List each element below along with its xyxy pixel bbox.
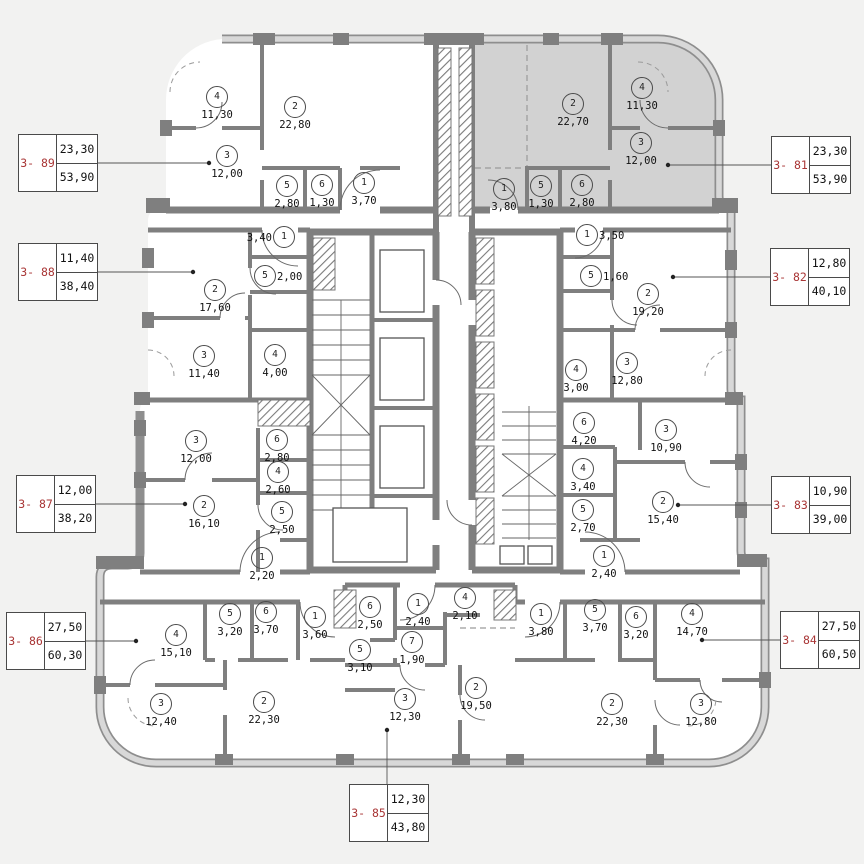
room-label: 52,00 (239, 265, 291, 287)
room-number: 1 (407, 593, 429, 615)
room-number: 1 (493, 178, 515, 200)
room-label: 312,00 (615, 132, 667, 167)
room-label: 219,20 (622, 283, 674, 318)
room-area: 15,10 (150, 648, 202, 659)
room-area: 2,00 (277, 272, 302, 283)
room-label: 62,80 (251, 429, 303, 464)
room-label: 44,00 (249, 344, 301, 379)
room-number: 4 (264, 344, 286, 366)
room-area-value: 12,00 (55, 476, 95, 505)
room-area: 11,40 (178, 369, 230, 380)
room-label: 43,40 (557, 458, 609, 493)
room-area: 12,00 (170, 454, 222, 465)
room-area: 22,30 (586, 717, 638, 728)
total-area-value: 39,00 (810, 506, 850, 534)
room-label: 63,70 (240, 601, 292, 636)
apartment-id: 3- 81 (772, 137, 810, 193)
total-area-value: 38,20 (55, 505, 95, 533)
total-area-value: 60,30 (45, 642, 85, 670)
room-number: 3 (216, 145, 238, 167)
room-number: 1 (530, 603, 552, 625)
room-area: 15,40 (637, 515, 689, 526)
total-area-value: 53,90 (57, 164, 97, 192)
room-number: 6 (311, 174, 333, 196)
apartment-callout-3-88: 3- 8811,4038,40 (18, 243, 98, 301)
total-area-value: 53,90 (810, 166, 850, 194)
floor-plan-drawing (0, 0, 864, 864)
room-number: 1 (251, 547, 273, 569)
room-label: 312,40 (135, 693, 187, 728)
room-number: 3 (655, 419, 677, 441)
room-area: 10,90 (640, 443, 692, 454)
room-number: 5 (349, 639, 371, 661)
room-area: 12,30 (379, 712, 431, 723)
room-number: 4 (681, 603, 703, 625)
room-label: 222,80 (269, 96, 321, 131)
room-number: 4 (565, 359, 587, 381)
room-number: 4 (454, 587, 476, 609)
room-label: 215,40 (637, 491, 689, 526)
room-area-value: 23,30 (57, 135, 97, 164)
room-number: 2 (652, 491, 674, 513)
apartment-callout-3-82: 3- 8212,8040,10 (770, 248, 850, 306)
room-number: 1 (576, 224, 598, 246)
room-area: 2,40 (578, 569, 630, 580)
room-label: 414,70 (666, 603, 718, 638)
room-number: 2 (253, 691, 275, 713)
room-label: 12,20 (236, 547, 288, 582)
room-number: 2 (284, 96, 306, 118)
room-label: 312,30 (379, 688, 431, 723)
apartment-callout-3-87: 3- 8712,0038,20 (16, 475, 96, 533)
room-label: 52,70 (557, 499, 609, 534)
apartment-id: 3- 88 (19, 244, 57, 300)
room-label: 42,10 (439, 587, 491, 622)
room-number: 4 (572, 458, 594, 480)
room-area: 17,60 (189, 303, 241, 314)
apartment-callout-3-86: 3- 8627,5060,30 (6, 612, 86, 670)
room-label: 311,40 (178, 345, 230, 380)
room-label: 312,00 (201, 145, 253, 180)
apartment-id: 3- 86 (7, 613, 45, 669)
room-number: 2 (204, 279, 226, 301)
room-number: 6 (625, 606, 647, 628)
room-number: 3 (185, 430, 207, 452)
floor-plan-page: 411,30 222,80 312,00 52,80 61,30 13,70 2… (0, 0, 864, 864)
room-area: 12,40 (135, 717, 187, 728)
room-area: 3,40 (247, 233, 272, 244)
room-number: 1 (273, 226, 295, 248)
room-number: 2 (193, 495, 215, 517)
room-number: 6 (255, 601, 277, 623)
room-area: 3,40 (557, 482, 609, 493)
total-area-value: 40,10 (809, 278, 849, 306)
apartment-callout-3-83: 3- 8310,9039,00 (771, 476, 851, 534)
room-area: 3,00 (550, 383, 602, 394)
room-area: 1,60 (603, 272, 628, 283)
room-label: 51,60 (565, 265, 617, 287)
room-number: 6 (573, 412, 595, 434)
room-area: 19,20 (622, 307, 674, 318)
room-area-value: 27,50 (45, 613, 85, 642)
room-label: 222,30 (238, 691, 290, 726)
room-area: 2,20 (236, 571, 288, 582)
room-area: 16,10 (178, 519, 230, 530)
apartment-id: 3- 89 (19, 135, 57, 191)
room-number: 2 (465, 677, 487, 699)
room-area: 19,50 (450, 701, 502, 712)
room-number: 5 (572, 499, 594, 521)
room-area-value: 12,80 (809, 249, 849, 278)
room-label: 216,10 (178, 495, 230, 530)
room-number: 3 (150, 693, 172, 715)
room-area: 22,80 (269, 120, 321, 131)
room-number: 3 (630, 132, 652, 154)
room-area: 3,20 (610, 630, 662, 641)
room-area: 22,70 (547, 117, 599, 128)
apartment-id: 3- 87 (17, 476, 55, 532)
room-label: 411,30 (616, 77, 668, 112)
room-area: 2,10 (439, 611, 491, 622)
room-number: 6 (266, 429, 288, 451)
room-number: 3 (193, 345, 215, 367)
room-area: 2,40 (392, 617, 444, 628)
room-number: 5 (219, 603, 241, 625)
room-area: 3,70 (240, 625, 292, 636)
room-number: 2 (562, 93, 584, 115)
room-label: 53,10 (334, 639, 386, 674)
room-number: 1 (304, 606, 326, 628)
room-number: 1 (353, 172, 375, 194)
room-label: 43,00 (550, 359, 602, 394)
room-number: 5 (584, 599, 606, 621)
room-label: 52,50 (256, 501, 308, 536)
room-label: 312,00 (170, 430, 222, 465)
apartment-callout-3-84: 3- 8427,5060,50 (780, 611, 860, 669)
room-area: 14,70 (666, 627, 718, 638)
apartment-callout-3-89: 3- 8923,3053,90 (18, 134, 98, 192)
room-area-value: 10,90 (810, 477, 850, 506)
room-label: 13,70 (338, 172, 390, 207)
room-number: 4 (267, 461, 289, 483)
room-number: 6 (359, 596, 381, 618)
room-number: 2 (637, 283, 659, 305)
room-area: 2,80 (556, 198, 608, 209)
room-label: 13,50 (561, 224, 613, 246)
room-label: 13,60 (289, 606, 341, 641)
room-area-value: 23,30 (810, 137, 850, 166)
total-area-value: 60,50 (819, 641, 859, 669)
room-number: 2 (601, 693, 623, 715)
room-area-value: 11,40 (57, 244, 97, 273)
total-area-value: 43,80 (388, 814, 428, 842)
room-label: 222,70 (547, 93, 599, 128)
room-label: 217,60 (189, 279, 241, 314)
room-area: 3,10 (334, 663, 386, 674)
room-number: 6 (571, 174, 593, 196)
room-number: 1 (593, 545, 615, 567)
total-area-value: 38,40 (57, 273, 97, 301)
room-number: 5 (530, 175, 552, 197)
room-area: 11,30 (191, 110, 243, 121)
room-number: 3 (690, 693, 712, 715)
room-area: 12,80 (601, 376, 653, 387)
room-label: 415,10 (150, 624, 202, 659)
room-number: 5 (271, 501, 293, 523)
room-area: 12,80 (675, 717, 727, 728)
room-number: 4 (165, 624, 187, 646)
room-number: 4 (206, 86, 228, 108)
room-label: 42,60 (252, 461, 304, 496)
apartment-id: 3- 83 (772, 477, 810, 533)
apartment-callout-3-85: 3- 8512,3043,80 (349, 784, 429, 842)
room-label: 222,30 (586, 693, 638, 728)
room-area: 22,30 (238, 715, 290, 726)
room-label: 71,90 (386, 631, 438, 666)
room-area: 3,80 (515, 627, 567, 638)
room-area: 1,90 (386, 655, 438, 666)
room-label: 312,80 (601, 352, 653, 387)
apartment-callout-3-81: 3- 8123,3053,90 (771, 136, 851, 194)
apartment-id: 3- 82 (771, 249, 809, 305)
room-area: 2,60 (252, 485, 304, 496)
room-label: 310,90 (640, 419, 692, 454)
room-area: 2,70 (557, 523, 609, 534)
room-area: 2,50 (256, 525, 308, 536)
room-number: 7 (401, 631, 423, 653)
room-label: 13,40 (258, 226, 310, 248)
room-label: 411,30 (191, 86, 243, 121)
room-area-value: 12,30 (388, 785, 428, 814)
room-number: 5 (254, 265, 276, 287)
room-label: 12,40 (392, 593, 444, 628)
room-label: 62,50 (344, 596, 396, 631)
room-label: 219,50 (450, 677, 502, 712)
apartment-id: 3- 84 (781, 612, 819, 668)
room-area: 11,30 (616, 101, 668, 112)
room-area: 3,70 (338, 196, 390, 207)
room-label: 62,80 (556, 174, 608, 209)
room-label: 63,20 (610, 606, 662, 641)
room-number: 5 (276, 175, 298, 197)
room-label: 13,80 (515, 603, 567, 638)
room-number: 3 (394, 688, 416, 710)
room-number: 4 (631, 77, 653, 99)
room-area: 4,00 (249, 368, 301, 379)
room-area: 12,00 (615, 156, 667, 167)
room-label: 312,80 (675, 693, 727, 728)
room-area: 12,00 (201, 169, 253, 180)
room-area: 2,50 (344, 620, 396, 631)
apartment-id: 3- 85 (350, 785, 388, 841)
room-area: 4,20 (558, 436, 610, 447)
room-number: 5 (580, 265, 602, 287)
room-label: 64,20 (558, 412, 610, 447)
room-area: 3,50 (599, 231, 624, 242)
room-number: 3 (616, 352, 638, 374)
room-area-value: 27,50 (819, 612, 859, 641)
room-label: 12,40 (578, 545, 630, 580)
